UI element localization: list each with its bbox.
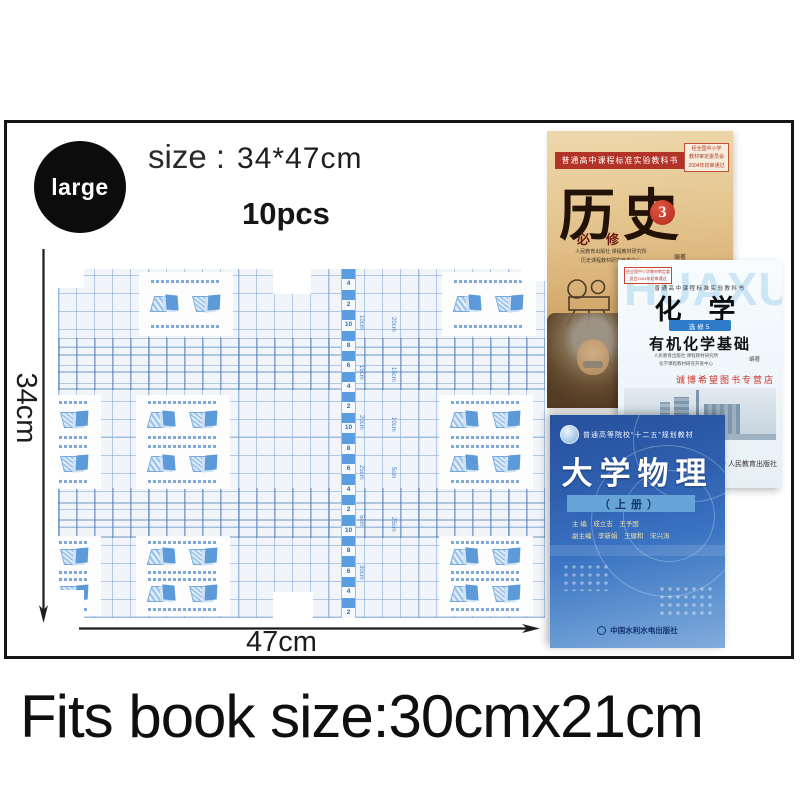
history-approval-box: 经全国中小学 教材审定委员会 2004年初审通过 [684,143,729,172]
store-watermark: 诚博希望图书专营店 [676,373,775,386]
publisher-logo-icon [597,626,606,635]
size-badge-label: large [51,174,108,201]
approval-line: 员会2004年初审通过 [630,276,667,282]
size-label: size : [148,138,225,176]
globe-icon [560,425,579,444]
ruler-cm-label: 10cm [358,315,364,330]
approval-line: 经全国中小学 [691,145,721,154]
closed-book-icon [189,453,219,475]
open-book-icon [147,409,177,431]
chemistry-edit-label: 编著 [749,355,760,363]
physics-editors: 主 编 成立志 王予国 副主编 李新娟 王健和 宋兴涛 [572,519,670,542]
fits-book-size-caption: Fits book size:30cmx21cm [20,682,703,751]
open-book-icon [450,546,480,568]
ruler-cm-label: 15cm [390,367,396,382]
closed-book-icon [189,583,219,605]
chemistry-subtitle: 有机化学基础 [618,333,782,354]
film-instruction-block [137,537,229,615]
open-book-icon [147,583,177,605]
physics-title: 大学物理 [550,448,725,493]
width-dimension-label: 47cm [246,626,317,659]
cover-band [550,545,725,556]
closed-book-icon [492,409,522,431]
closed-book-icon [60,453,90,475]
history-volume-badge: 3 [650,200,675,225]
ruler-cm-label: 5cm [390,467,396,478]
physics-volume-badge: （上册） [567,495,695,512]
film-notch-corner [521,269,545,281]
film-ruler: 42108642108642108642 [342,269,355,618]
chemistry-publisher: ❀ 人民教育出版社 [719,459,777,469]
open-book-icon [147,546,177,568]
closed-book-icon [60,546,90,568]
approval-line: 教材审定委员会 [689,153,724,162]
physics-series: 普通高等院校“十二五”规划教材 [583,430,694,440]
film-instruction-block [137,396,229,488]
book-cover-film: 42108642108642108642 10cm15cm20cm25cm5cm… [58,269,545,618]
open-book-icon [450,453,480,475]
publisher-name: 人民教育出版社 [728,461,777,468]
open-book-icon [147,453,177,475]
dot-pattern [658,585,712,619]
product-image: large size : 34*47cm 10pcs 4210864210864… [0,0,800,800]
closed-book-icon [189,409,219,431]
closed-book-icon [492,546,522,568]
film-instruction-block [58,396,100,488]
closed-book-icon [192,293,222,315]
physics-publisher: 中国水利水电出版社 [550,625,725,636]
ruler-cm-label: 20cm [358,415,364,430]
open-book-icon [150,293,180,315]
ruler-cm-label: 5cm [358,515,364,526]
closed-book-icon [60,409,90,431]
editors-line: 主 编 成立志 王予国 [572,519,670,531]
physics-textbook-cover: 普通高等院校“十二五”规划教材 大学物理 （上册） 主 编 成立志 王予国 副主… [550,415,725,648]
ruler-cm-label: 10cm [390,417,396,432]
editors-line: 副主编 李新娟 王健和 宋兴涛 [572,531,670,543]
closed-book-icon [189,546,219,568]
height-dimension-label: 34cm [2,358,42,458]
size-badge: large [34,141,126,233]
authors-line: 人民教育出版社 课程教材研究所 [626,352,746,360]
film-notch-corner [58,590,84,618]
film-notch-top [273,269,311,294]
film-grid-band [58,338,545,390]
closed-book-icon [492,583,522,605]
open-book-icon [450,583,480,605]
history-series-banner: 普通高中课程标准实验教科书 [555,152,685,169]
publisher-name: 中国水利水电出版社 [610,625,678,636]
film-instruction-block [440,537,532,615]
closed-book-icon [492,453,522,475]
film-instruction-block [140,273,232,335]
ruler-cm-label: 15cm [358,365,364,380]
film-notch-bottom [273,592,313,618]
open-book-icon [450,409,480,431]
ruler-cm-label: 25cm [358,465,364,480]
quantity-label: 10pcs [242,196,330,232]
size-line: size : 34*47cm [148,138,362,176]
chemistry-authors: 人民教育出版社 课程教材研究所 化学课程教材研究开发中心 [626,352,746,367]
closed-book-icon [495,293,525,315]
history-subtitle: 必修 [577,229,635,248]
ruler-cm-label: 20cm [390,317,396,332]
ruler-cm-label: 25cm [390,517,396,532]
film-notch-corner [58,269,84,288]
size-value: 34*47cm [237,142,362,176]
film-instruction-block [440,396,532,488]
ruler-cm-label: 30cm [358,565,364,580]
approval-line: 2004年初审通过 [688,162,724,171]
chemistry-approval-box: 经全国中小学教材审定委 员会2004年初审通过 [624,267,672,284]
authors-line: 人民教育出版社 课程教材研究所 [553,248,669,257]
chemistry-module-badge: 选修5 [669,320,731,331]
authors-line: 化学课程教材研究开发中心 [626,360,746,368]
film-instruction-block [443,273,535,335]
film-grid-band [58,488,545,538]
dot-pattern [562,563,608,591]
open-book-icon [453,293,483,315]
